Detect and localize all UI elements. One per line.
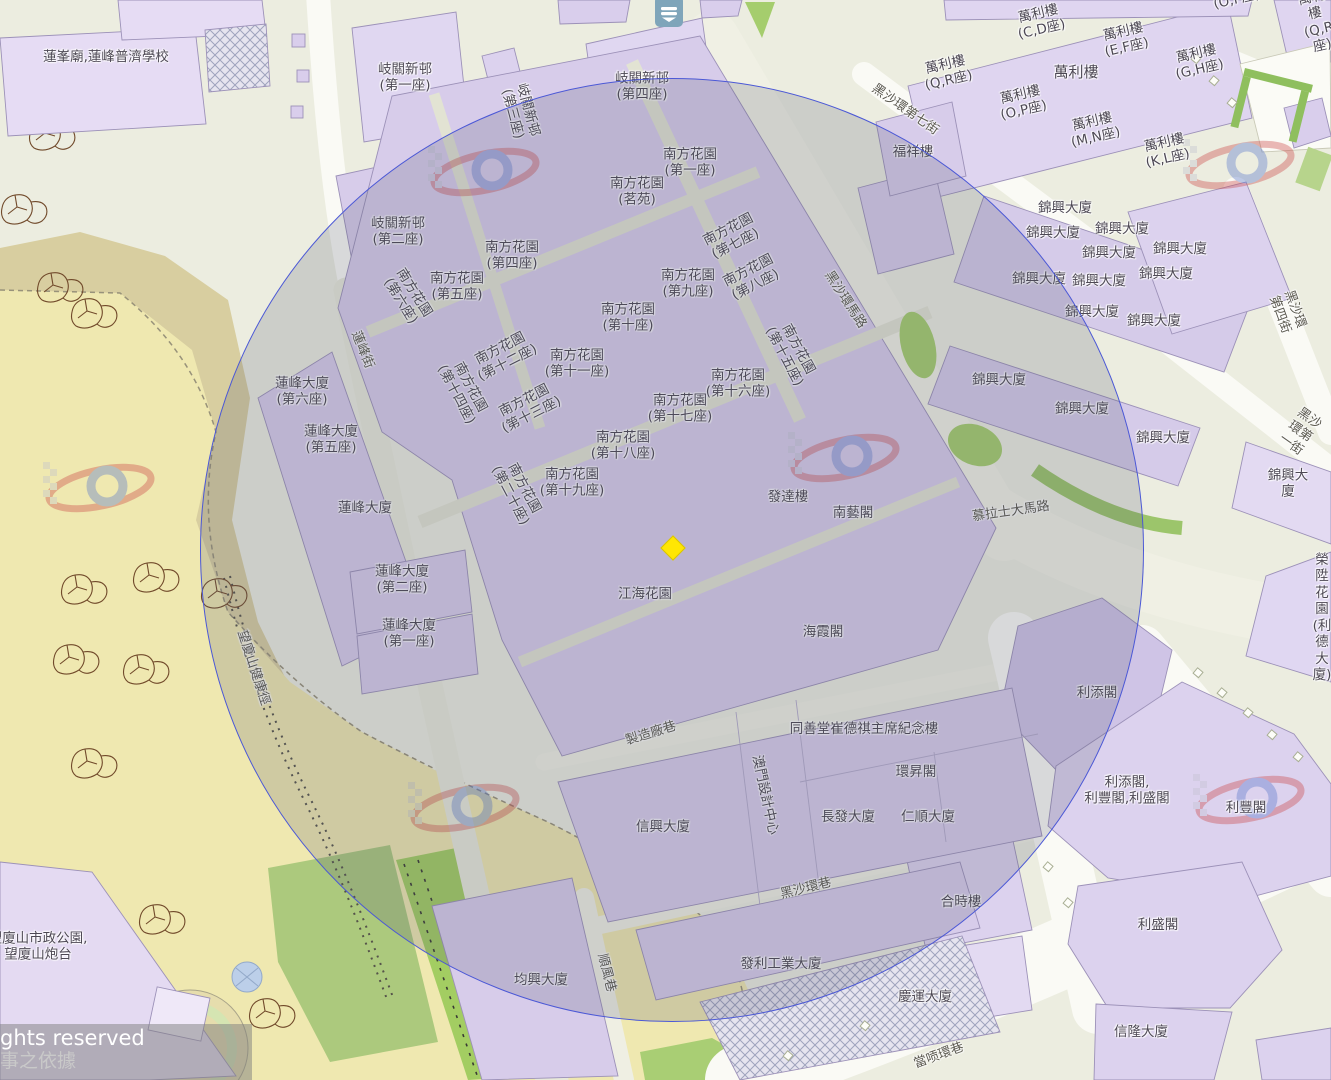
- attribution-line1: ghts reserved: [0, 1026, 246, 1050]
- park-pond: [232, 962, 262, 992]
- basemap-tiles: [0, 0, 1331, 1080]
- map-canvas[interactable]: 蓮峯廟,蓮峰普濟學校岐關新邨 (第一座)岐關新邨 (第三座)岐關新邨 (第四座)…: [0, 0, 1331, 1080]
- attribution-box: ghts reserved 事之依據: [0, 1024, 252, 1080]
- layers-button[interactable]: [655, 0, 683, 27]
- attribution-line2: 事之依據: [0, 1050, 246, 1073]
- layers-icon: [660, 7, 678, 25]
